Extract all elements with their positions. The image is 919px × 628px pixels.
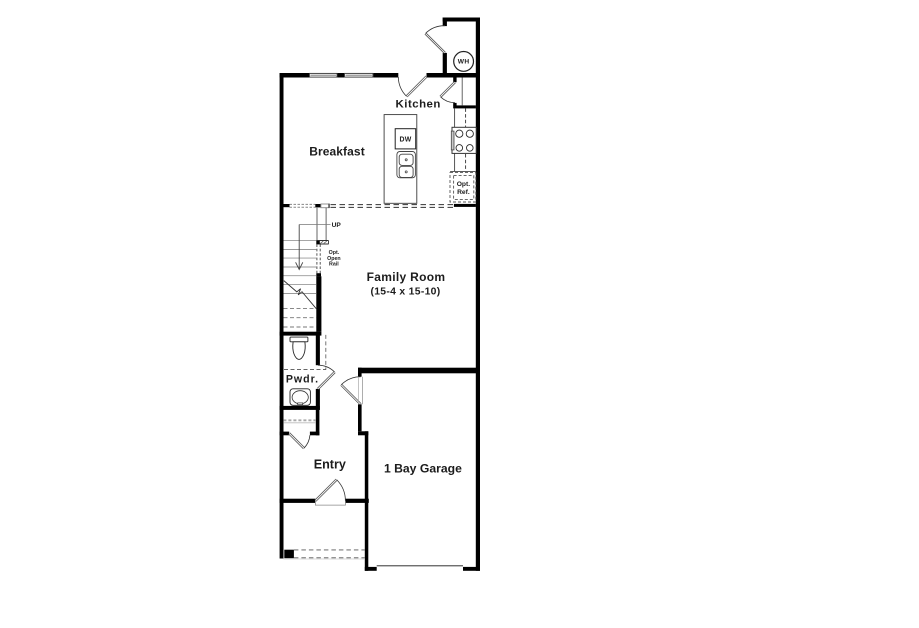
svg-text:Kitchen: Kitchen xyxy=(396,98,441,110)
svg-text:WH: WH xyxy=(458,59,470,66)
svg-text:Rail: Rail xyxy=(329,262,339,268)
svg-text:Opt.: Opt. xyxy=(457,181,471,188)
svg-text:Pwdr.: Pwdr. xyxy=(286,373,319,385)
svg-text:Entry: Entry xyxy=(314,457,346,471)
svg-text:UP: UP xyxy=(332,222,342,229)
svg-text:Family Room: Family Room xyxy=(367,270,446,284)
svg-text:Breakfast: Breakfast xyxy=(309,144,365,158)
svg-text:(15-4 x 15-10): (15-4 x 15-10) xyxy=(370,287,440,298)
svg-text:DW: DW xyxy=(400,137,412,144)
svg-text:Ref.: Ref. xyxy=(457,189,470,196)
svg-text:1 Bay Garage: 1 Bay Garage xyxy=(384,462,462,476)
